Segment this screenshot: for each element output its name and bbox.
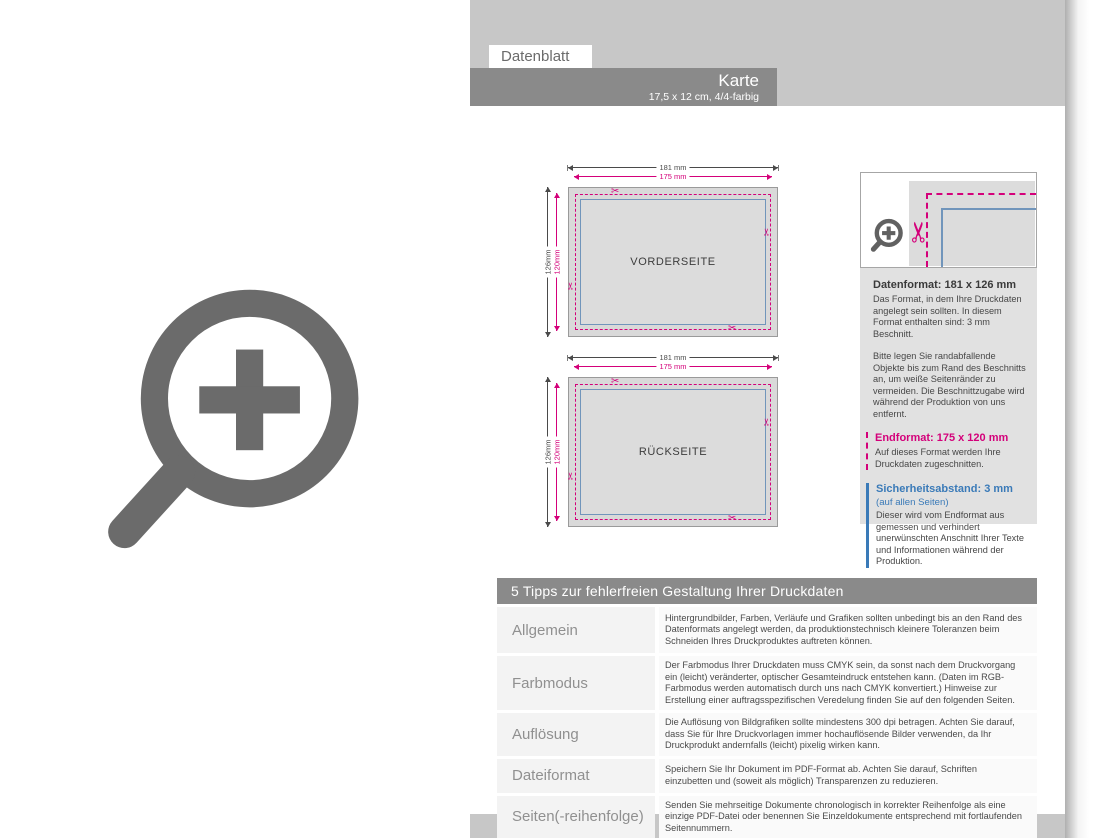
scissors-icon: ✂ <box>611 377 619 387</box>
scissors-icon: ✂ <box>728 324 736 334</box>
back-face-label: RÜCKSEITE <box>639 446 707 458</box>
row-label-allgemein: Allgemein <box>497 607 655 653</box>
front-height-outer-label: 126mm <box>544 246 553 277</box>
front-card-bleed-area: VORDERSEITE <box>568 187 778 337</box>
datenformat-section: Datenformat: 181 x 126 mm Das Format, in… <box>866 279 1027 420</box>
datasheet-page: Datenblatt Karte 17,5 x 12 cm, 4/4-farbi… <box>0 0 1117 838</box>
datenformat-text-1: Das Format, in dem Ihre Druckdaten angel… <box>873 294 1027 340</box>
cut-detail-box: ✂ <box>860 172 1037 268</box>
format-info-panel: Datenformat: 181 x 126 mm Das Format, in… <box>860 268 1037 524</box>
sicherheitsabstand-section: Sicherheitsabstand: 3 mm (auf allen Seit… <box>866 483 1027 568</box>
front-height-inner-dimension: 120mm <box>556 193 557 331</box>
back-width-inner-label: 175 mm <box>656 362 689 371</box>
front-safety-area: VORDERSEITE <box>580 199 766 325</box>
scissors-icon: ✂ <box>567 282 577 290</box>
table-row: Dateiformat Speichern Sie Ihr Dokument i… <box>497 759 1037 793</box>
scissors-icon: ✂ <box>611 187 619 197</box>
tips-table: 5 Tipps zur fehlerfreien Gestaltung Ihre… <box>497 578 1037 838</box>
front-diagram: 181 mm 175 mm 126mm 120mm VORDERSEITE ✂ … <box>543 160 783 345</box>
detail-safety-line <box>941 208 943 267</box>
sicherheitsabstand-subtitle: (auf allen Seiten) <box>876 497 1027 508</box>
front-width-outer-label: 181 mm <box>656 163 689 172</box>
tips-table-title: 5 Tipps zur fehlerfreien Gestaltung Ihre… <box>497 578 1037 604</box>
datenformat-title: Datenformat: 181 x 126 mm <box>873 279 1027 292</box>
page-edge-shadow <box>1065 0 1089 838</box>
row-label-aufloesung: Auflösung <box>497 713 655 756</box>
datenblatt-tab: Datenblatt <box>489 45 592 68</box>
magnifier-plus-icon <box>100 278 372 568</box>
row-text-farbmodus: Der Farbmodus Ihrer Druckdaten muss CMYK… <box>659 656 1037 710</box>
detail-safety-line <box>941 208 1036 210</box>
table-row: Allgemein Hintergrundbilder, Farben, Ver… <box>497 607 1037 653</box>
front-face-label: VORDERSEITE <box>630 256 715 268</box>
datenformat-text-2: Bitte legen Sie randabfallende Objekte b… <box>873 351 1027 420</box>
row-text-seitenreihenfolge: Senden Sie mehrseitige Dokumente chronol… <box>659 796 1037 838</box>
back-height-outer-label: 126mm <box>544 436 553 467</box>
scissors-icon: ✂ <box>763 228 773 236</box>
endformat-section: Endformat: 175 x 120 mm Auf dieses Forma… <box>866 432 1027 470</box>
detail-cut-line <box>926 193 1036 195</box>
back-card-bleed-area: RÜCKSEITE <box>568 377 778 527</box>
back-width-outer-label: 181 mm <box>656 353 689 362</box>
sicherheitsabstand-text: Dieser wird vom Endformat aus gemessen u… <box>876 510 1027 568</box>
product-title: Karte <box>470 71 759 91</box>
scissors-icon: ✂ <box>763 418 773 426</box>
back-height-inner-label: 120mm <box>553 436 562 467</box>
front-height-outer-dimension: 126mm <box>547 187 548 337</box>
endformat-text: Auf dieses Format werden Ihre Druckdaten… <box>875 447 1027 470</box>
scissors-icon: ✂ <box>906 220 934 243</box>
product-subtitle: 17,5 x 12 cm, 4/4-farbig <box>470 91 759 104</box>
back-height-outer-dimension: 126mm <box>547 377 548 527</box>
row-label-dateiformat: Dateiformat <box>497 759 655 793</box>
table-row: Farbmodus Der Farbmodus Ihrer Druckdaten… <box>497 656 1037 710</box>
endformat-title: Endformat: 175 x 120 mm <box>875 432 1027 445</box>
table-row: Seiten(-reihenfolge) Senden Sie mehrseit… <box>497 796 1037 838</box>
datenblatt-tab-label: Datenblatt <box>501 48 569 65</box>
magnifier-plus-icon <box>870 218 904 254</box>
back-width-outer-dimension: 181 mm <box>568 357 778 358</box>
row-text-allgemein: Hintergrundbilder, Farben, Verläufe und … <box>659 607 1037 653</box>
back-width-inner-dimension: 175 mm <box>574 366 772 367</box>
row-text-aufloesung: Die Auflösung von Bildgrafiken sollte mi… <box>659 713 1037 756</box>
table-row: Auflösung Die Auflösung von Bildgrafiken… <box>497 713 1037 756</box>
back-diagram: 181 mm 175 mm 126mm 120mm RÜCKSEITE ✂ ✂ … <box>543 350 783 535</box>
scissors-icon: ✂ <box>728 514 736 524</box>
front-width-inner-label: 175 mm <box>656 172 689 181</box>
front-width-inner-dimension: 175 mm <box>574 176 772 177</box>
back-safety-area: RÜCKSEITE <box>580 389 766 515</box>
sicherheitsabstand-title: Sicherheitsabstand: 3 mm <box>876 483 1027 496</box>
scissors-icon: ✂ <box>567 472 577 480</box>
row-label-seitenreihenfolge: Seiten(-reihenfolge) <box>497 796 655 838</box>
product-title-bar: Karte 17,5 x 12 cm, 4/4-farbig <box>470 68 777 106</box>
row-label-farbmodus: Farbmodus <box>497 656 655 710</box>
back-height-inner-dimension: 120mm <box>556 383 557 521</box>
front-height-inner-label: 120mm <box>553 246 562 277</box>
row-text-dateiformat: Speichern Sie Ihr Dokument im PDF-Format… <box>659 759 1037 793</box>
front-width-outer-dimension: 181 mm <box>568 167 778 168</box>
